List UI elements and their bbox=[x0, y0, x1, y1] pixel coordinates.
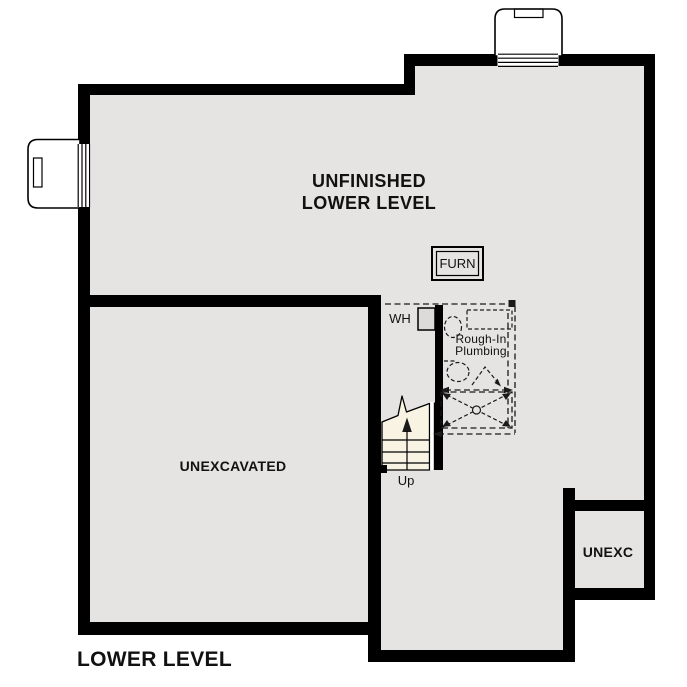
divider-wall bbox=[78, 295, 381, 307]
drain-symbol bbox=[473, 406, 481, 414]
furnace-label: FURN bbox=[432, 247, 483, 280]
plan-title: LOWER LEVEL bbox=[77, 648, 232, 672]
stair-wall bbox=[435, 305, 443, 470]
stair-stringer-gap bbox=[430, 402, 434, 470]
unexcavated-room-label: UNEXCAVATED bbox=[133, 458, 333, 474]
floor-plan: UNFINISHED LOWER LEVEL UNEXCAVATED UNEXC… bbox=[0, 0, 687, 687]
water-heater-label: WH bbox=[386, 311, 414, 326]
unexc-top-wall bbox=[573, 500, 644, 511]
unexcavated-bottom-wall bbox=[78, 622, 381, 635]
water-heater-symbol bbox=[418, 308, 435, 330]
rough-in-label-line2: Plumbing bbox=[431, 346, 531, 358]
main-room-label: UNFINISHED LOWER LEVEL bbox=[269, 170, 469, 214]
floor-plan-drawing bbox=[0, 0, 687, 687]
right-wall bbox=[644, 54, 655, 600]
unexcavated-right-wall bbox=[368, 295, 381, 662]
top-window-opening bbox=[498, 54, 559, 68]
mid-step-wall bbox=[563, 488, 575, 662]
stairs-up-label: Up bbox=[386, 473, 426, 488]
unexc-room-label: UNEXC bbox=[558, 544, 658, 560]
unexc-bottom-wall bbox=[563, 588, 655, 600]
main-room-label-line2: LOWER LEVEL bbox=[269, 192, 469, 214]
top-wall-left bbox=[78, 84, 415, 95]
top-well-outline bbox=[495, 9, 562, 56]
plumbing-dot bbox=[509, 300, 516, 307]
stair-bottom-stub bbox=[368, 465, 387, 473]
top-window-well bbox=[495, 9, 562, 67]
left-well-outline bbox=[28, 140, 80, 209]
main-room-label-line1: UNFINISHED bbox=[269, 170, 469, 192]
left-window-opening bbox=[78, 144, 92, 207]
left-window-well bbox=[28, 140, 91, 209]
bottom-wall bbox=[368, 650, 575, 662]
rough-in-label: Rough-In Plumbing bbox=[431, 334, 531, 357]
